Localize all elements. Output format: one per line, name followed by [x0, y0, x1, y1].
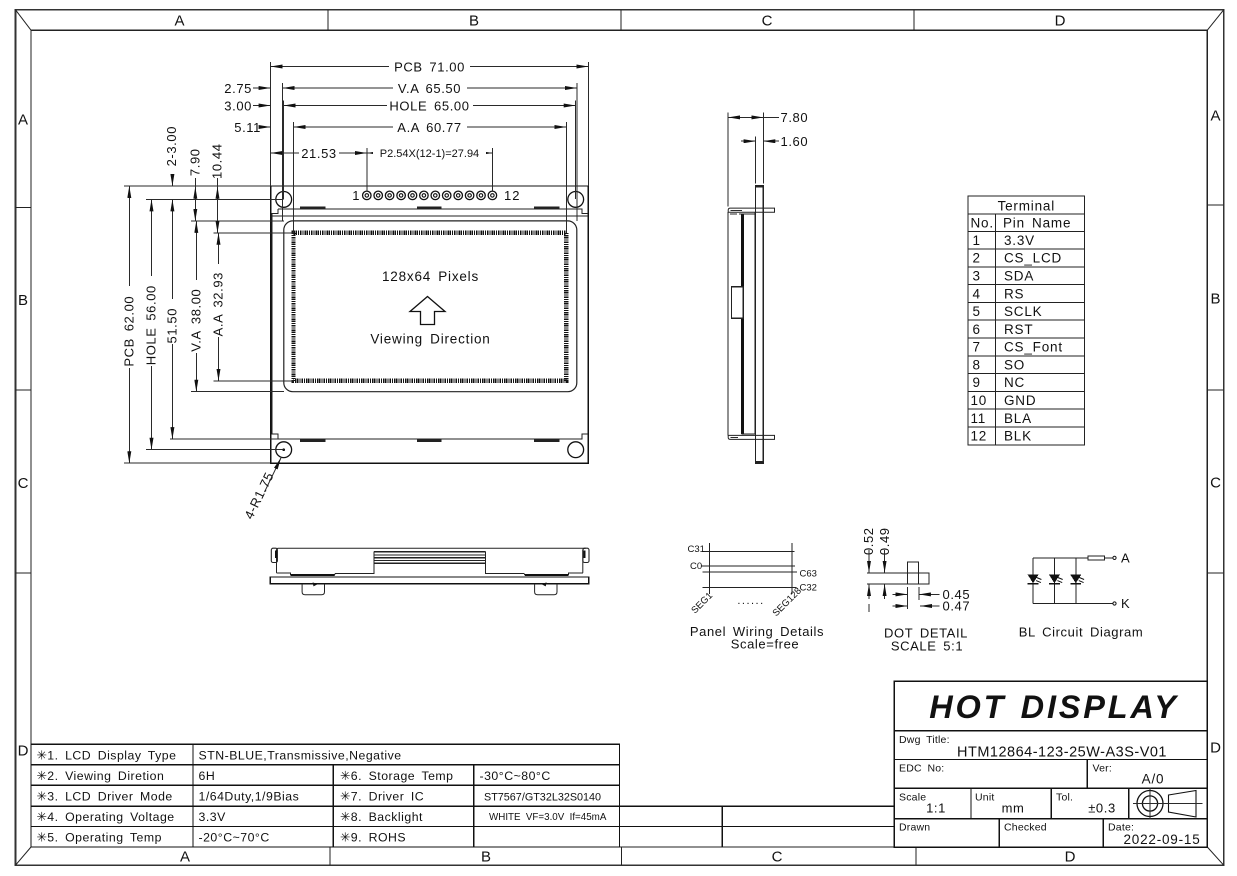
svg-text:RST: RST — [1004, 322, 1033, 337]
svg-text:B: B — [1210, 291, 1220, 308]
svg-text:B: B — [18, 292, 28, 309]
svg-text:9: 9 — [973, 375, 981, 390]
svg-text:mm: mm — [1002, 801, 1025, 816]
svg-text:✳1. LCD Display Type: ✳1. LCD Display Type — [37, 749, 177, 763]
svg-text:WHITE VF=3.0V If=45mA: WHITE VF=3.0V If=45mA — [489, 812, 607, 823]
svg-text:2022-09-15: 2022-09-15 — [1123, 832, 1200, 847]
svg-text:D: D — [1065, 849, 1076, 866]
svg-text:HTM12864-123-25W-A3S-V01: HTM12864-123-25W-A3S-V01 — [957, 745, 1167, 761]
svg-text:Pin Name: Pin Name — [1003, 216, 1071, 231]
svg-text:BL Circuit Diagram: BL Circuit Diagram — [1019, 625, 1144, 640]
svg-text:CS_Font: CS_Font — [1004, 340, 1063, 355]
svg-text:1: 1 — [352, 188, 359, 203]
svg-text:D: D — [1210, 740, 1221, 757]
svg-text:✳9. ROHS: ✳9. ROHS — [340, 831, 406, 845]
svg-text:-20°C~70°C: -20°C~70°C — [199, 831, 270, 845]
svg-text:Ver:: Ver: — [1093, 763, 1112, 775]
svg-text:HOLE 65.00: HOLE 65.00 — [389, 99, 469, 114]
svg-text:51.50: 51.50 — [165, 308, 180, 344]
svg-text:SCALE 5:1: SCALE 5:1 — [891, 639, 963, 654]
svg-text:SCLK: SCLK — [1004, 304, 1042, 319]
svg-text:A.A 32.93: A.A 32.93 — [211, 272, 226, 336]
svg-text:GND: GND — [1004, 393, 1036, 408]
svg-text:Scale: Scale — [899, 792, 926, 804]
svg-text:5.11: 5.11 — [234, 120, 261, 135]
svg-text:Scale=free: Scale=free — [731, 637, 800, 652]
svg-text:C: C — [772, 849, 783, 866]
svg-text:10: 10 — [971, 393, 988, 408]
svg-text:EDC No:: EDC No: — [899, 763, 944, 775]
svg-text:7: 7 — [973, 340, 981, 355]
svg-text:21.53: 21.53 — [301, 146, 337, 161]
svg-text:A: A — [174, 13, 184, 30]
svg-text:✳4. Operating Voltage: ✳4. Operating Voltage — [37, 810, 175, 824]
svg-text:PCB 71.00: PCB 71.00 — [394, 60, 465, 75]
svg-text:Drawn: Drawn — [899, 822, 930, 834]
svg-text:1/64Duty,1/9Bias: 1/64Duty,1/9Bias — [199, 790, 300, 804]
svg-text:BLA: BLA — [1004, 411, 1032, 426]
svg-text:10.44: 10.44 — [210, 143, 225, 179]
svg-text:B: B — [481, 849, 491, 866]
svg-text:A: A — [1210, 108, 1220, 125]
svg-text:P2.54X(12-1)=27.94: P2.54X(12-1)=27.94 — [380, 148, 479, 160]
svg-text:Terminal: Terminal — [998, 198, 1055, 213]
svg-text:2.75: 2.75 — [224, 81, 252, 96]
svg-text:7.90: 7.90 — [188, 148, 203, 176]
svg-text:Dwg Title:: Dwg Title: — [899, 734, 950, 746]
svg-text:5: 5 — [973, 304, 981, 319]
svg-text:8: 8 — [973, 357, 981, 372]
svg-text:No.: No. — [971, 216, 994, 231]
svg-text:HOT DISPLAY: HOT DISPLAY — [929, 689, 1179, 725]
svg-text:±0.3: ±0.3 — [1088, 801, 1116, 816]
svg-text:✳3. LCD Driver Mode: ✳3. LCD Driver Mode — [37, 790, 173, 804]
svg-text:7.80: 7.80 — [781, 110, 809, 125]
svg-text:Unit: Unit — [975, 792, 994, 804]
svg-text:✳6. Storage Temp: ✳6. Storage Temp — [340, 769, 454, 783]
svg-text:BLK: BLK — [1004, 429, 1032, 444]
svg-text:C31: C31 — [688, 544, 705, 555]
svg-text:PCB 62.00: PCB 62.00 — [122, 296, 137, 367]
svg-text:Tol.: Tol. — [1056, 792, 1073, 804]
svg-text:C63: C63 — [800, 569, 817, 580]
svg-text:STN-BLUE,Transmissive,Negative: STN-BLUE,Transmissive,Negative — [199, 749, 402, 763]
svg-text:-30°C~80°C: -30°C~80°C — [480, 769, 551, 783]
svg-text:CS_LCD: CS_LCD — [1004, 251, 1062, 266]
svg-text:SDA: SDA — [1004, 269, 1034, 284]
svg-text:RS: RS — [1004, 286, 1024, 301]
svg-text:C: C — [18, 475, 29, 492]
svg-text:HOLE 56.00: HOLE 56.00 — [144, 285, 159, 365]
svg-text:✳7. Driver IC: ✳7. Driver IC — [340, 790, 424, 804]
svg-text:6: 6 — [973, 322, 981, 337]
svg-text:3.3V: 3.3V — [1004, 233, 1035, 248]
svg-text:ST7567/GT32L32S0140: ST7567/GT32L32S0140 — [484, 792, 601, 804]
svg-text:C: C — [762, 13, 773, 30]
svg-text:K: K — [1121, 596, 1130, 611]
svg-text:Viewing Direction: Viewing Direction — [370, 331, 490, 346]
svg-text:1.60: 1.60 — [781, 134, 809, 149]
svg-text:6H: 6H — [199, 769, 216, 783]
svg-text:Checked: Checked — [1004, 822, 1047, 834]
svg-text:✳5. Operating Temp: ✳5. Operating Temp — [37, 831, 162, 845]
svg-text:C: C — [1210, 475, 1221, 492]
svg-text:0.47: 0.47 — [943, 599, 971, 614]
svg-text:D: D — [18, 743, 29, 760]
svg-text:2-3.00: 2-3.00 — [164, 126, 179, 166]
svg-text:......: ...... — [737, 595, 764, 607]
svg-text:A: A — [1121, 550, 1130, 565]
svg-text:A: A — [18, 112, 28, 129]
svg-text:NC: NC — [1004, 375, 1025, 390]
svg-text:✳8. Backlight: ✳8. Backlight — [340, 810, 423, 824]
svg-text:12: 12 — [971, 429, 988, 444]
svg-text:11: 11 — [971, 411, 987, 426]
svg-text:128x64 Pixels: 128x64 Pixels — [382, 269, 479, 284]
svg-text:1:1: 1:1 — [926, 801, 946, 816]
svg-text:V.A 65.50: V.A 65.50 — [398, 81, 461, 96]
svg-text:C0: C0 — [690, 561, 702, 572]
svg-text:✳2. Viewing Diretion: ✳2. Viewing Diretion — [37, 769, 165, 783]
svg-text:A/0: A/0 — [1142, 772, 1165, 787]
svg-text:SO: SO — [1004, 357, 1025, 372]
svg-text:D: D — [1055, 13, 1066, 30]
svg-text:4: 4 — [973, 286, 981, 301]
svg-text:V.A 38.00: V.A 38.00 — [189, 289, 204, 352]
svg-text:3.3V: 3.3V — [199, 810, 227, 824]
svg-text:B: B — [469, 13, 479, 30]
svg-text:2: 2 — [973, 251, 981, 266]
svg-text:3.00: 3.00 — [224, 99, 252, 114]
svg-text:3: 3 — [973, 269, 981, 284]
svg-text:A: A — [180, 849, 190, 866]
svg-text:A.A 60.77: A.A 60.77 — [397, 120, 461, 135]
svg-text:12: 12 — [504, 188, 520, 203]
svg-text:1: 1 — [973, 233, 981, 248]
